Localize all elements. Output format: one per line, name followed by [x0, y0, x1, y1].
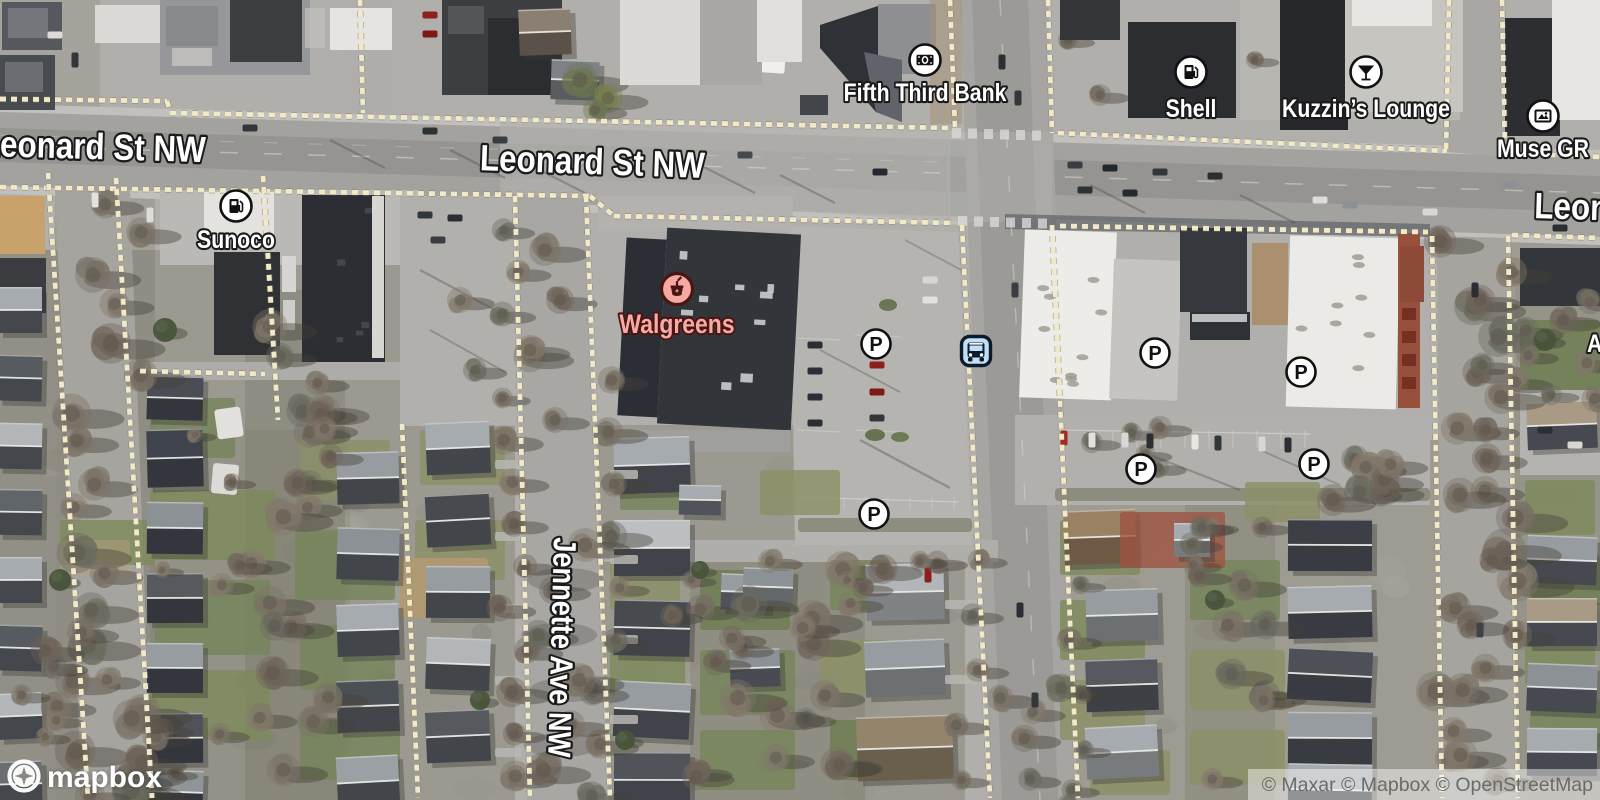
svg-text:P: P	[1294, 362, 1307, 384]
svg-text:Leonard St NW: Leonard St NW	[479, 138, 706, 187]
svg-text:P: P	[1134, 459, 1147, 481]
svg-text:Fifth Third Bank: Fifth Third Bank	[844, 78, 1007, 106]
svg-text:Leonard St NW: Leonard St NW	[1534, 186, 1600, 234]
svg-text:Muse GR: Muse GR	[1497, 134, 1589, 162]
svg-text:© Maxar © Mapbox © OpenStreetM: © Maxar © Mapbox © OpenStreetMap	[1262, 774, 1594, 796]
svg-text:P: P	[869, 334, 882, 356]
svg-text:Kuzzin’s Lounge: Kuzzin’s Lounge	[1282, 94, 1450, 122]
svg-text:Jennette Ave NW: Jennette Ave NW	[541, 537, 582, 758]
svg-text:Walgreens: Walgreens	[619, 309, 734, 339]
svg-text:Shell: Shell	[1166, 94, 1217, 122]
svg-text:Leonard St NW: Leonard St NW	[0, 124, 207, 171]
svg-text:mapbox: mapbox	[47, 761, 162, 794]
svg-text:P: P	[867, 504, 880, 526]
svg-text:P: P	[1307, 454, 1320, 476]
svg-text:Ar: Ar	[1587, 329, 1600, 357]
svg-text:Sunoco: Sunoco	[197, 225, 275, 253]
svg-text:P: P	[1148, 343, 1161, 365]
